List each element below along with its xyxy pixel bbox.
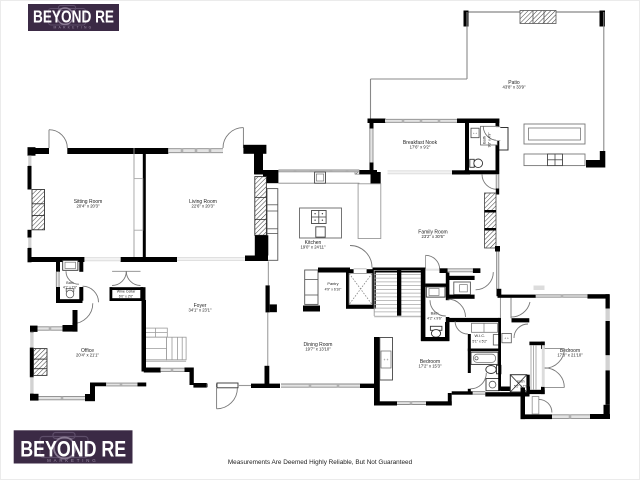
svg-text:34'1" x 23'1": 34'1" x 23'1" bbox=[189, 308, 212, 313]
svg-text:6'0" x 2'0": 6'0" x 2'0" bbox=[119, 294, 134, 298]
svg-text:19'7" x 13'10": 19'7" x 13'10" bbox=[305, 347, 331, 352]
svg-text:W.I.C.: W.I.C. bbox=[475, 333, 486, 338]
svg-text:9'3" x 4'9": 9'3" x 4'9" bbox=[488, 132, 492, 148]
svg-text:Bath: Bath bbox=[517, 380, 524, 384]
svg-text:4'2" x 9'6": 4'2" x 9'6" bbox=[427, 317, 443, 321]
svg-text:22'6" x 20'3": 22'6" x 20'3" bbox=[192, 204, 215, 209]
svg-text:Pantry: Pantry bbox=[327, 281, 338, 286]
svg-text:5'1" x 5'2": 5'1" x 5'2" bbox=[472, 339, 488, 343]
svg-text:4'9" x 6'10": 4'9" x 6'10" bbox=[325, 287, 343, 291]
svg-text:MARKETING: MARKETING bbox=[54, 26, 94, 30]
svg-text:BEYOND RE: BEYOND RE bbox=[33, 6, 114, 26]
svg-text:Bath: Bath bbox=[483, 136, 487, 144]
svg-text:+ +: + + bbox=[473, 131, 478, 135]
svg-text:17'8" x 21'10": 17'8" x 21'10" bbox=[557, 353, 583, 358]
svg-text:17'2" x 15'3": 17'2" x 15'3" bbox=[419, 364, 442, 369]
svg-text:17'6" x 9'2": 17'6" x 9'2" bbox=[410, 145, 431, 150]
svg-text:Measurements Are Deemed Highly: Measurements Are Deemed Highly Reliable,… bbox=[228, 459, 413, 466]
svg-text:19'0" x 24'11": 19'0" x 24'11" bbox=[301, 245, 326, 250]
svg-text:23'2" x 30'6": 23'2" x 30'6" bbox=[422, 234, 445, 239]
svg-text:+ +: + + bbox=[384, 358, 389, 362]
svg-text:Wine Cellar: Wine Cellar bbox=[117, 290, 136, 294]
svg-text:20'4" x 21'1": 20'4" x 21'1" bbox=[76, 353, 99, 358]
svg-text:43'8" x 33'9": 43'8" x 33'9" bbox=[503, 85, 526, 90]
svg-text:20'4" x 20'3": 20'4" x 20'3" bbox=[77, 204, 100, 209]
svg-text:+ +: + + bbox=[504, 337, 509, 341]
svg-text:MARKETING: MARKETING bbox=[47, 458, 98, 463]
